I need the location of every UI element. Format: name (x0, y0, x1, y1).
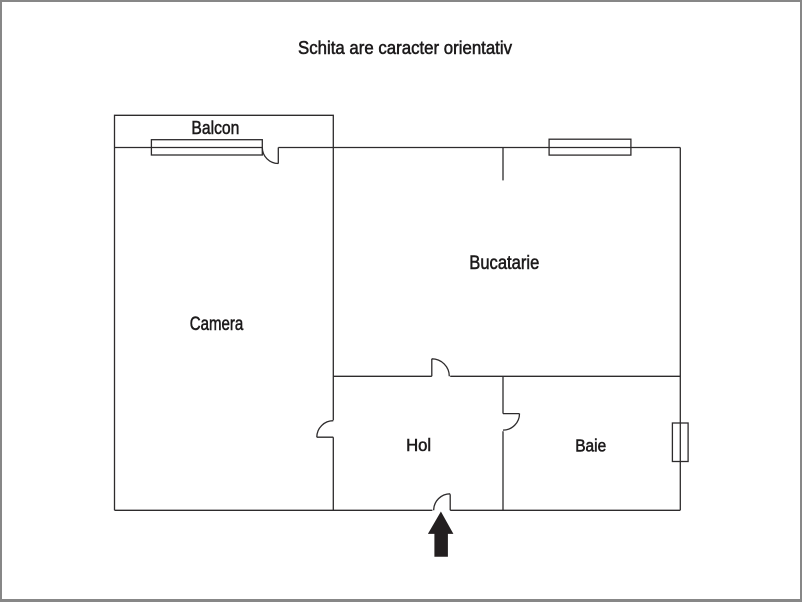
svg-text:Hol: Hol (406, 435, 431, 455)
svg-text:Bucatarie: Bucatarie (469, 252, 539, 274)
svg-text:Schita are caracter orientativ: Schita are caracter orientativ (298, 37, 513, 58)
svg-text:Balcon: Balcon (191, 118, 239, 138)
svg-text:Baie: Baie (575, 435, 606, 455)
svg-text:Camera: Camera (190, 313, 244, 335)
